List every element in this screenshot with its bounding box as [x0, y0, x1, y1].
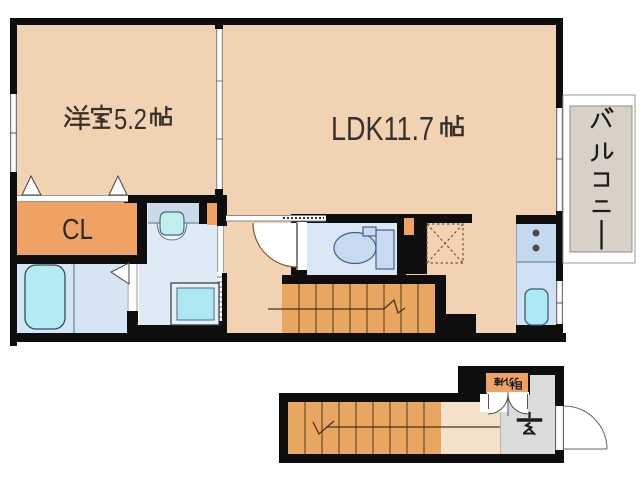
svg-text:LDK11.7: LDK11.7 — [331, 110, 434, 147]
svg-text:CL: CL — [62, 214, 93, 246]
svg-text:5.2: 5.2 — [114, 104, 147, 136]
